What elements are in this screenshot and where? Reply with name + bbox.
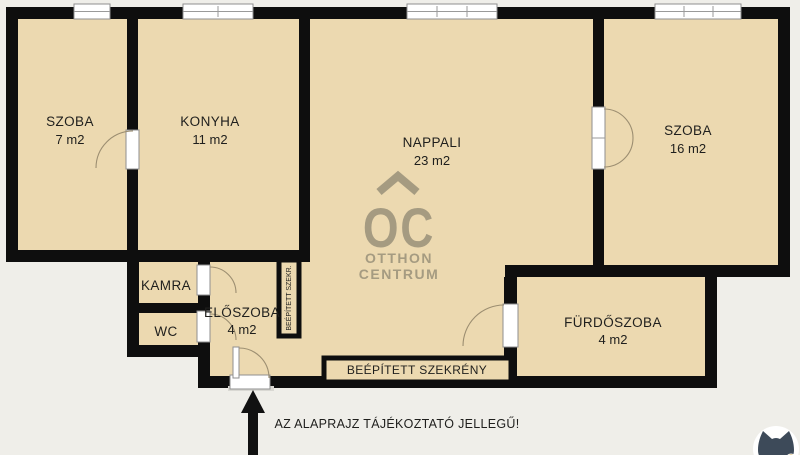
room-area-eloszoba: 4 m2 — [228, 322, 257, 337]
room-label-wc: WC — [154, 324, 177, 339]
floor-plan-svg: SZOBA 7 m2 KONYHA 11 m2 NAPPALI 23 m2 SZ… — [0, 0, 800, 455]
room-area-konyha: 11 m2 — [192, 132, 227, 147]
floor-plan-image: SZOBA 7 m2 KONYHA 11 m2 NAPPALI 23 m2 SZ… — [0, 0, 800, 455]
wall-outer-right — [778, 7, 790, 277]
room-label-eloszoba: ELŐSZOBA — [204, 305, 280, 320]
window-szoba7 — [74, 4, 110, 19]
room-label-szoba7: SZOBA — [46, 114, 94, 129]
wall-bathroom-bottom — [504, 376, 717, 388]
room-label-konyha: KONYHA — [180, 114, 239, 129]
wall-left-section-bottom — [6, 250, 310, 262]
window-szoba16 — [655, 4, 741, 19]
window-nappali — [407, 4, 497, 19]
logo-line2: CENTRUM — [359, 266, 440, 282]
room-label-kamra: KAMRA — [141, 278, 191, 293]
room-label-szoba16: SZOBA — [664, 123, 712, 138]
wall-outer-left — [6, 7, 18, 262]
wall-konyha-nappali-divider — [299, 19, 310, 251]
vertical-wardrobe-label: BEÉPÍTETT SZEKR. — [284, 265, 293, 330]
disclaimer-text: AZ ALAPRAJZ TÁJÉKOZTATÓ JELLEGŰ! — [274, 416, 519, 431]
room-area-furdoszoba: 4 m2 — [599, 332, 628, 347]
room-area-szoba7: 7 m2 — [56, 132, 85, 147]
wall-szoba16-bottom — [505, 265, 790, 277]
room-area-szoba16: 16 m2 — [670, 141, 706, 156]
room-label-nappali: NAPPALI — [403, 135, 462, 150]
wall-bathroom-right — [705, 265, 717, 388]
logo-line1: OTTHON — [365, 250, 433, 266]
window-konyha — [183, 4, 253, 19]
wall-wc-bottom — [127, 345, 210, 357]
room-area-nappali: 23 m2 — [414, 153, 450, 168]
bottom-wardrobe-label: BEÉPÍTETT SZEKRÉNY — [347, 362, 487, 377]
room-label-furdoszoba: FÜRDŐSZOBA — [564, 315, 662, 330]
